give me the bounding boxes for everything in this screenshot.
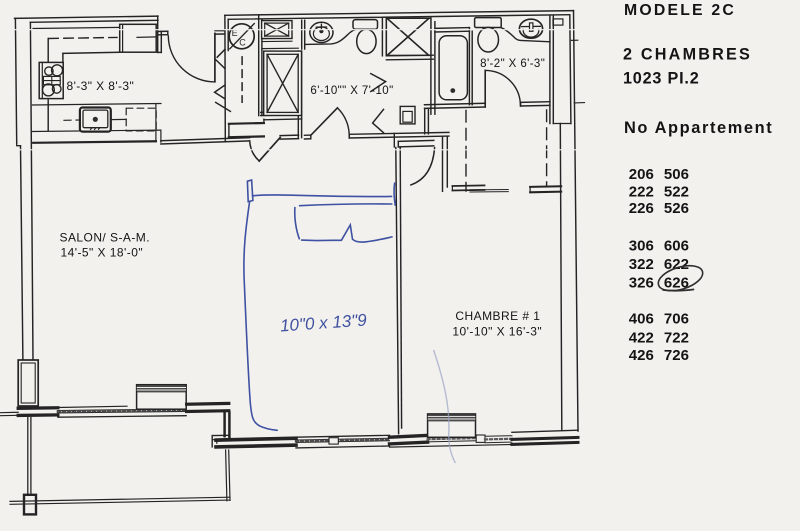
svg-text:426: 426	[629, 347, 654, 364]
svg-text:8'-3" X 8'-3": 8'-3" X 8'-3"	[67, 79, 135, 93]
svg-text:526: 526	[664, 200, 689, 217]
svg-text:622: 622	[664, 256, 689, 273]
svg-text:422: 422	[629, 329, 654, 346]
svg-text:726: 726	[664, 347, 689, 364]
svg-text:C: C	[239, 38, 246, 48]
svg-text:606: 606	[664, 238, 689, 255]
svg-text:322: 322	[629, 256, 654, 273]
svg-text:10'-10" X 16'-3": 10'-10" X 16'-3"	[452, 325, 542, 339]
svg-text:306: 306	[629, 238, 654, 255]
svg-text:326: 326	[629, 274, 654, 291]
svg-text:706: 706	[664, 311, 689, 328]
svg-text:226: 226	[629, 200, 654, 217]
svg-text:6'-10"" X 7'-10": 6'-10"" X 7'-10"	[310, 85, 393, 97]
svg-text:2 CHAMBRES: 2 CHAMBRES	[623, 45, 752, 63]
svg-text:722: 722	[664, 329, 689, 346]
svg-text:1023 PI.2: 1023 PI.2	[623, 69, 700, 87]
svg-text:406: 406	[629, 311, 654, 328]
svg-text:506: 506	[664, 166, 689, 183]
svg-text:522: 522	[664, 184, 689, 201]
svg-text:CHAMBRE # 1: CHAMBRE # 1	[455, 309, 540, 323]
svg-text:14'-5" X 18'-0": 14'-5" X 18'-0"	[61, 246, 144, 260]
svg-text:MODELE 2C: MODELE 2C	[624, 2, 736, 19]
svg-text:No Appartement: No Appartement	[624, 119, 773, 137]
svg-text:206: 206	[629, 166, 654, 183]
svg-text:SALON/ S-A-M.: SALON/ S-A-M.	[60, 230, 151, 244]
svg-text:222: 222	[629, 184, 654, 201]
svg-text:8'-2" X 6'-3": 8'-2" X 6'-3"	[480, 58, 545, 70]
